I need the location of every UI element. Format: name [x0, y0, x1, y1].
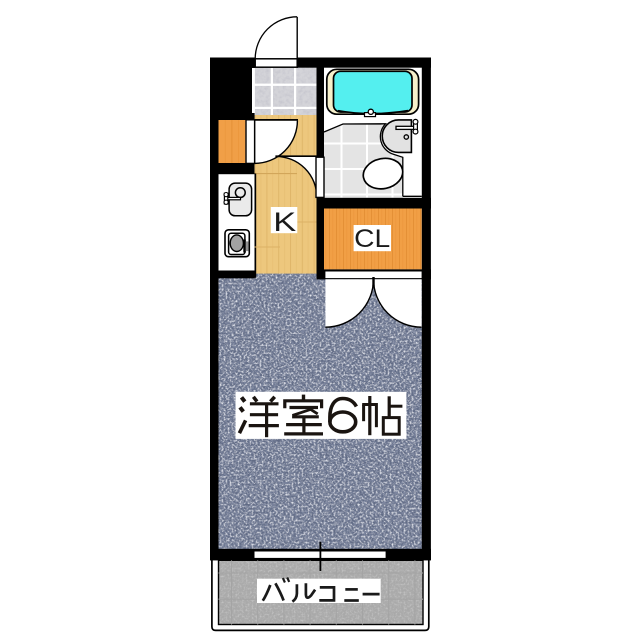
svg-text:CL: CL — [354, 225, 390, 253]
svg-text:K: K — [273, 207, 297, 237]
